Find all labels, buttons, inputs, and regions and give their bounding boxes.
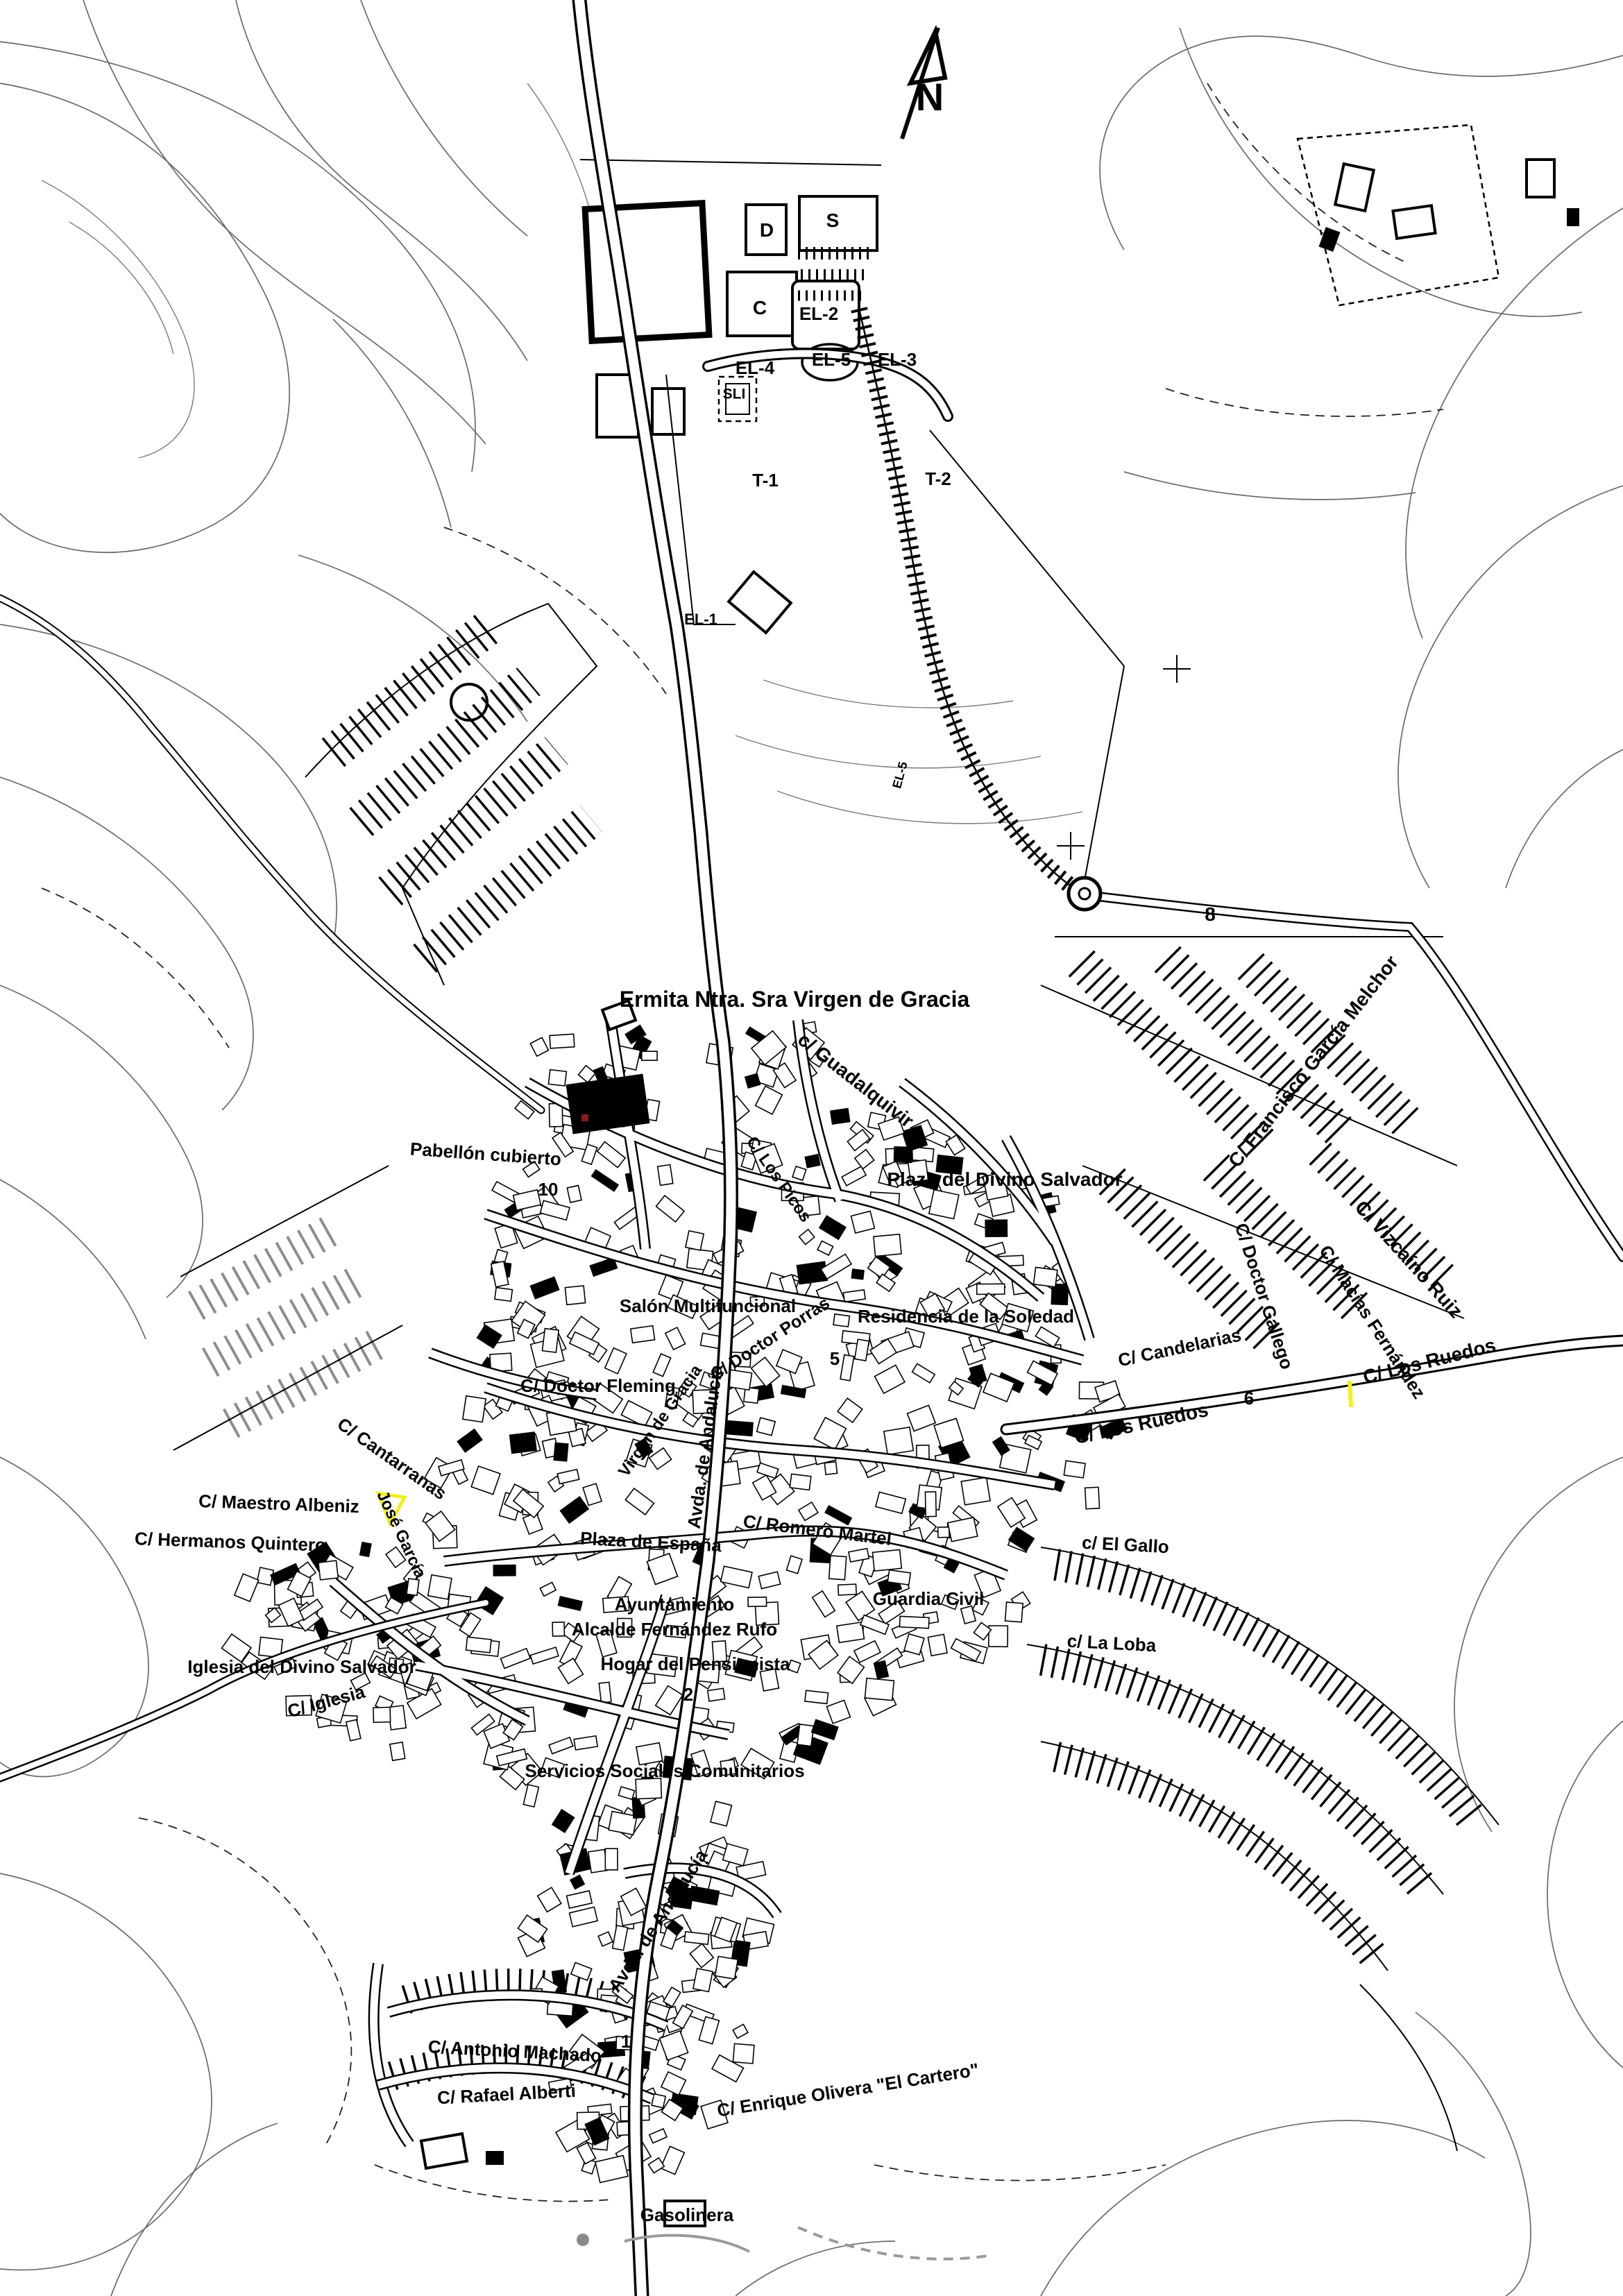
yellow-tick-marker <box>1350 1381 1351 1407</box>
nw-subdivision <box>305 604 597 985</box>
map-label-num-8: 8 <box>1205 905 1216 924</box>
map-label-zone-sli: SLI <box>723 387 746 402</box>
map-label-poi-iglesia-divino: Iglesia del Divino Salvador <box>187 1658 416 1676</box>
map-linework <box>0 0 1623 2296</box>
map-label-zone-c: C <box>753 298 767 318</box>
map-label-num-6: 6 <box>1244 1389 1254 1407</box>
map-label-poi-salon: Salón Multifuncional <box>620 1297 796 1315</box>
map-label-num-5: 5 <box>830 1350 840 1368</box>
map-label-poi-ayuntamiento: Ayuntamiento <box>615 1595 734 1613</box>
map-label-st-el-gallo: c/ El Gallo <box>1082 1533 1170 1556</box>
map-label-st-alcalde-fernandez-rufo: Alcalde Fernández Rufo <box>572 1620 777 1638</box>
map-label-poi-gasolinera: Gasolinera <box>640 2206 733 2224</box>
map-label-zone-el5: EL-5 <box>812 350 851 368</box>
town-plan-map: N DSCEL-2EL-4EL-5EL-3SLIT-1T-2EL-1EL-58E… <box>0 0 1623 2296</box>
map-label-poi-servicios-sociales: Servicios Sociales Comunitarios <box>525 1762 804 1780</box>
map-label-st-doctor-fleming: C/ Doctor Fleming <box>520 1377 676 1395</box>
map-label-num-2: 2 <box>683 1685 693 1703</box>
map-label-zone-el4: EL-4 <box>736 359 774 377</box>
map-label-zone-t1: T-1 <box>752 471 779 489</box>
map-label-zone-el1: EL-1 <box>684 612 717 627</box>
map-label-num-1: 1 <box>621 2032 631 2050</box>
map-label-poi-plaza-divino: Plaza del Divino Salvador <box>887 1170 1122 1189</box>
map-label-zone-s: S <box>826 211 840 230</box>
map-label-poi-ermita: Ermita Ntra. Sra Virgen de Gracia <box>620 988 970 1010</box>
map-label-poi-residencia: Residencia de la Soledad <box>858 1307 1074 1325</box>
map-label-st-la-loba: c/ La Loba <box>1067 1632 1157 1655</box>
north-label: N <box>916 78 944 117</box>
west-gray-strips <box>173 1166 402 1450</box>
map-label-zone-t2: T-2 <box>925 470 951 488</box>
railway-corridor <box>859 309 1080 892</box>
map-label-zone-el3: EL-3 <box>878 350 917 368</box>
map-label-zone-el2: EL-2 <box>799 305 838 323</box>
grid-cross-marks <box>1057 655 1191 860</box>
map-label-poi-hogar-pensionista: Hogar del Pensionista <box>600 1655 790 1673</box>
farm-cluster <box>1298 125 1579 305</box>
map-label-poi-guardia-civil: Guardia Civil <box>873 1590 984 1608</box>
red-marker <box>581 1114 588 1121</box>
map-label-st-maestro-albeniz: C/ Maestro Albeniz <box>198 1492 359 1515</box>
map-label-zone-d: D <box>760 221 774 240</box>
map-label-num-10: 10 <box>538 1180 559 1198</box>
